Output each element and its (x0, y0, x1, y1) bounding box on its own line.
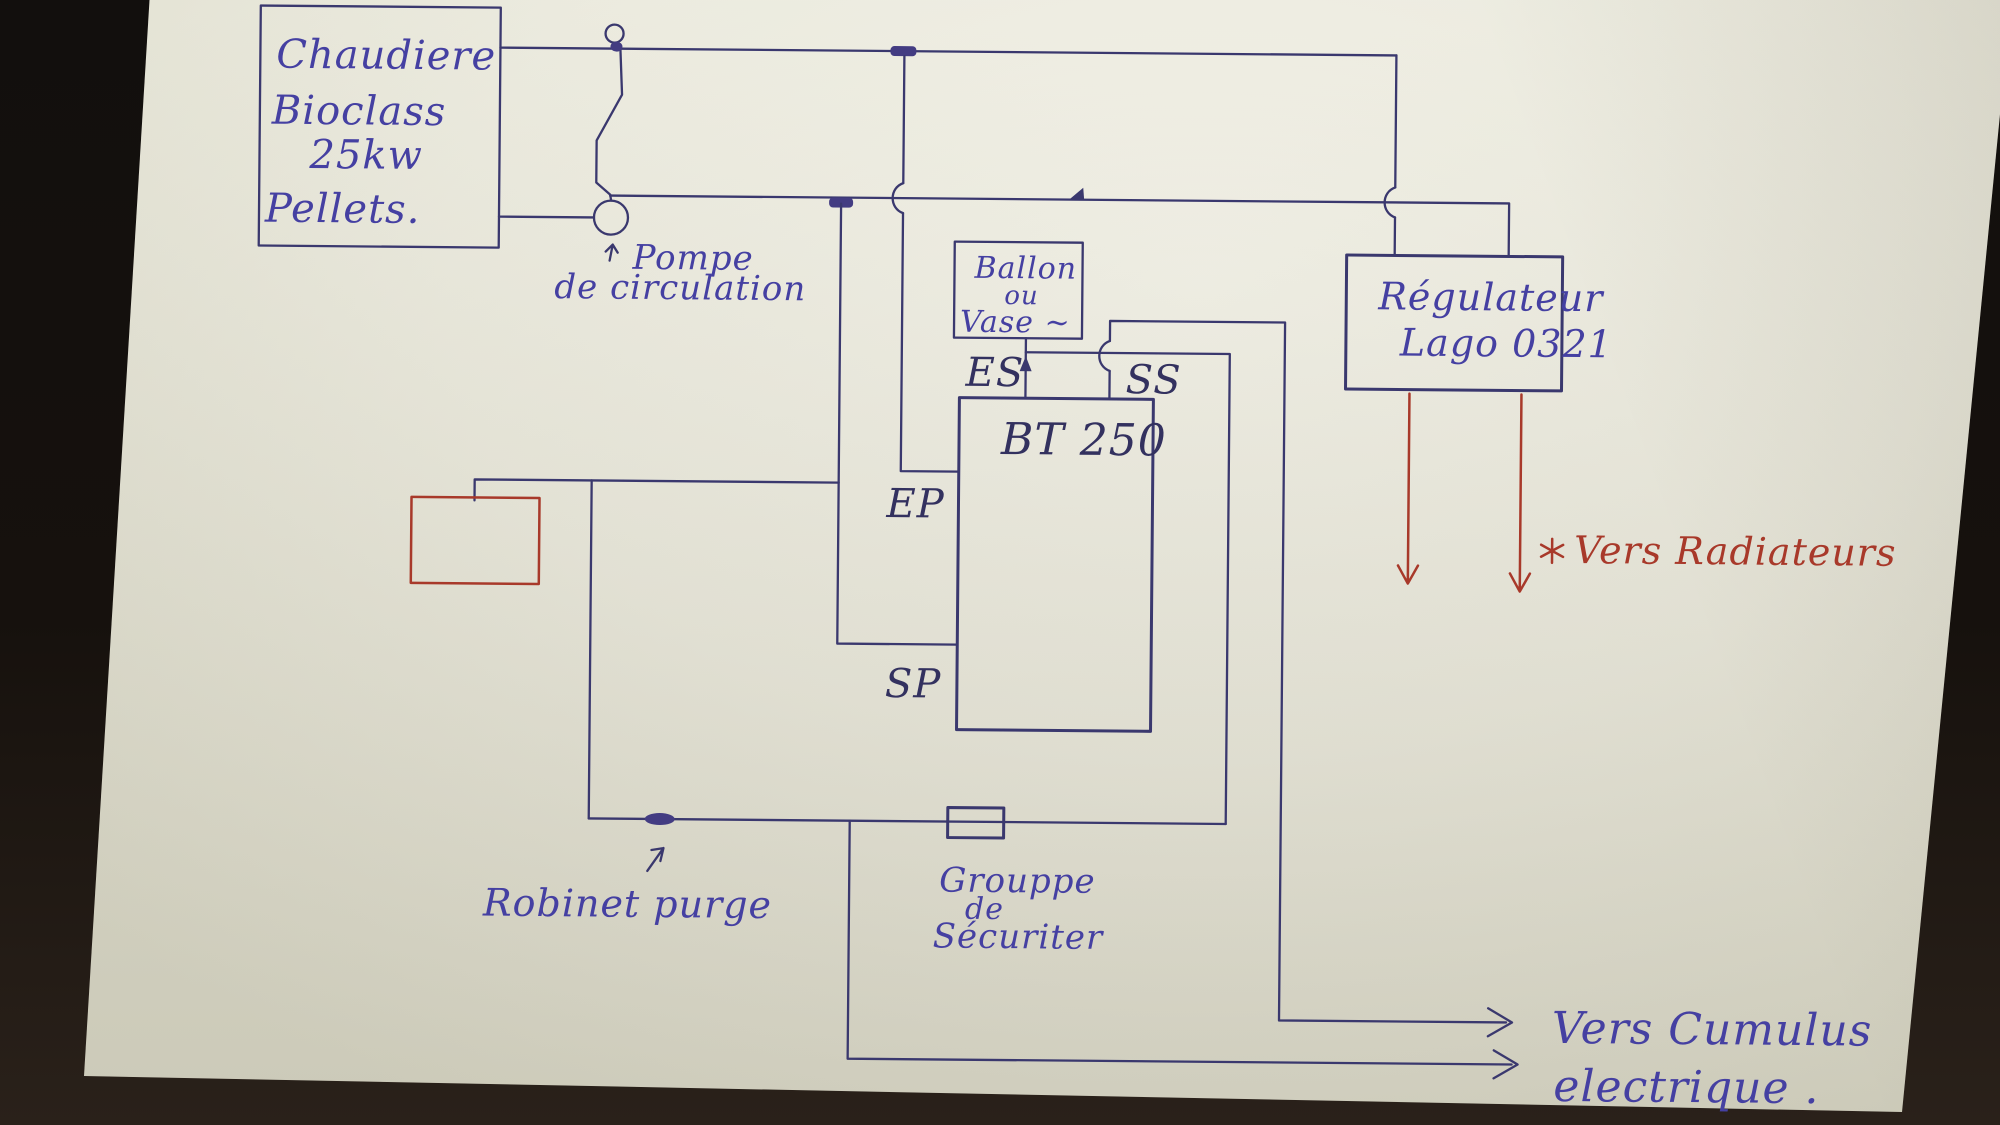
port-label-ep: EP (885, 481, 945, 528)
expansion-tank-label-line3: Vase ~ (960, 305, 1071, 341)
purge-pointer-arrow (647, 848, 663, 871)
flow-direction-tick (1069, 188, 1084, 200)
radiators-note-label: Vers Radiateurs (1574, 528, 1897, 575)
ep-line (901, 56, 963, 471)
regulator-label-line2: Lago 0321 (1399, 320, 1613, 366)
circulation-pump-icon (594, 200, 628, 234)
sp-branch (825, 197, 961, 644)
sp-line (837, 204, 961, 645)
port-label-ss: SS (1125, 357, 1182, 403)
left-riser (589, 480, 592, 818)
ink-layer: Chaudiere Bioclass 25kw Pellets. Pompe d… (0, 0, 2000, 1125)
port-label-sp: SP (885, 661, 942, 707)
radiator-arrow-left (1398, 393, 1420, 583)
purge-label: Robinet purge (482, 880, 772, 927)
buffer-tank-label: BT 250 (1000, 414, 1167, 466)
boiler-to-pump-pipe (499, 217, 594, 218)
boiler-label-line3: 25kw (308, 132, 423, 179)
pump-riser-zigzag (596, 49, 622, 200)
cumulus-lines (848, 319, 1525, 1079)
red-ink (411, 385, 1565, 593)
left-cross-line (475, 479, 839, 503)
boiler-label-line1: Chaudiere (276, 32, 496, 80)
boiler-label-line4: Pellets. (264, 186, 421, 233)
regulator-drop-line (1384, 55, 1396, 255)
radiator-arrow-right (1510, 394, 1532, 591)
safety-group-label-line1: Grouppe (939, 860, 1096, 901)
left-loop (471, 479, 1228, 876)
star-icon (1541, 539, 1563, 563)
bottom-pipe (589, 818, 1226, 824)
photo-hand-drawn-heating-diagram: Chaudiere Bioclass 25kw Pellets. Pompe d… (0, 0, 2000, 1125)
regulator-feed-line (1395, 55, 1397, 255)
valve-stem-blob (610, 42, 622, 52)
tee-fitting-top (890, 46, 916, 56)
pipe-hop-arc-ss (1099, 341, 1110, 371)
ep-branch (887, 46, 963, 472)
red-empty-box (411, 497, 540, 584)
safety-group-label-line3: Sécuriter (933, 916, 1105, 957)
pump-label-line2: de circulation (554, 267, 806, 309)
top-supply-pipe (500, 48, 1396, 56)
pump-pointer-arrow (606, 245, 618, 261)
air-vent-valve-icon (606, 25, 624, 43)
regulator-label-line1: Régulateur (1377, 274, 1605, 320)
cumulus-note-line2: electrique . (1553, 1061, 1820, 1114)
port-label-es: ES (964, 350, 1024, 397)
cumulus-note-line1: Vers Cumulus (1552, 1003, 1873, 1057)
boiler-label-line2: Bioclass (271, 88, 447, 136)
purge-valve-icon (645, 813, 675, 825)
